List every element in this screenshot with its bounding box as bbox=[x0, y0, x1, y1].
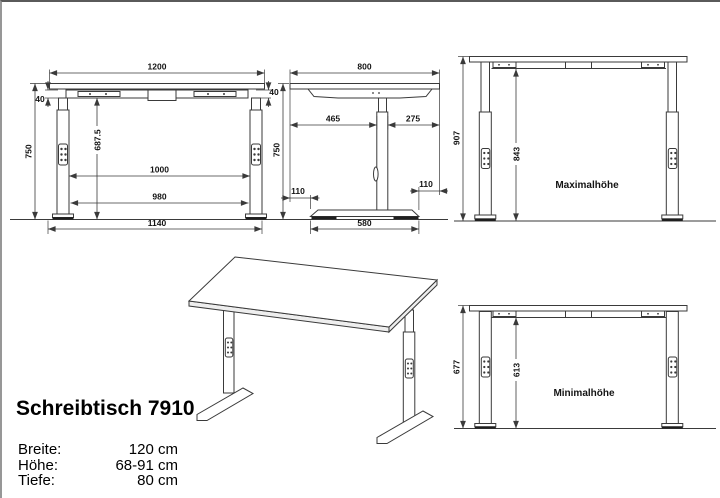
front-center-bracket bbox=[148, 90, 176, 101]
spec-table: Breite: 120 cm Höhe: 68-91 cm Tiefe: 80 … bbox=[18, 442, 178, 489]
dim-front-feet-span: 1140 bbox=[148, 218, 167, 228]
dim-side-depth: 800 bbox=[357, 62, 371, 72]
product-block: Schreibtisch 7910 bbox=[16, 397, 195, 421]
dim-front-top-width: 1200 bbox=[148, 62, 167, 72]
dim-side-height: 750 bbox=[272, 143, 282, 157]
min-left-leg bbox=[475, 312, 496, 429]
side-frame bbox=[308, 89, 432, 98]
dim-side-overhang-rear: 110 bbox=[419, 179, 433, 189]
max-left-leg bbox=[475, 62, 496, 221]
min-height-view: 677 613 Minimalhöhe bbox=[452, 306, 688, 429]
dim-side-rear-seg: 275 bbox=[406, 114, 420, 124]
side-tabletop bbox=[290, 84, 440, 90]
dim-front-inner-lower: 980 bbox=[152, 192, 166, 202]
max-right-leg bbox=[662, 62, 683, 221]
dim-front-clearance: 687.5 bbox=[92, 129, 102, 151]
dim-min-total-height: 677 bbox=[452, 360, 462, 374]
spec-value-breite: 120 cm bbox=[129, 442, 178, 458]
dim-side-overhang-front: 110 bbox=[291, 186, 305, 196]
max-height-view: 907 843 Maximalhöhe bbox=[452, 57, 688, 222]
dim-side-base-depth: 580 bbox=[357, 218, 371, 228]
side-view: 800 465 275 750 110 110 580 bbox=[272, 62, 449, 235]
min-right-leg bbox=[662, 312, 683, 429]
technical-drawing-sheet: 1200 40 40 750 687.5 1000 980 1140 bbox=[0, 0, 720, 498]
spec-label-breite: Breite: bbox=[18, 442, 61, 458]
max-tabletop bbox=[470, 57, 688, 63]
dim-min-clearance: 613 bbox=[511, 363, 521, 377]
front-right-leg bbox=[246, 98, 267, 220]
dim-front-height: 750 bbox=[24, 144, 34, 158]
perspective-view bbox=[189, 257, 437, 444]
spec-row-hoehe: Höhe: 68-91 cm bbox=[18, 458, 178, 474]
min-tabletop bbox=[470, 306, 688, 312]
drawing-canvas: 1200 40 40 750 687.5 1000 980 1140 bbox=[2, 2, 720, 498]
product-title: Schreibtisch 7910 bbox=[16, 397, 195, 421]
front-tabletop bbox=[50, 84, 265, 90]
view-label-max: Maximalhöhe bbox=[555, 180, 619, 191]
dim-max-clearance: 843 bbox=[511, 147, 521, 161]
spec-value-tiefe: 80 cm bbox=[137, 473, 178, 489]
dim-front-frame-left: 40 bbox=[35, 94, 45, 104]
spec-label-tiefe: Tiefe: bbox=[18, 473, 55, 489]
perspective-left-leg bbox=[197, 304, 253, 421]
spec-row-breite: Breite: 120 cm bbox=[18, 442, 178, 458]
dim-front-inner-upper: 1000 bbox=[150, 165, 169, 175]
dim-max-total-height: 907 bbox=[452, 131, 462, 145]
dim-side-front-seg: 465 bbox=[326, 114, 340, 124]
dim-front-frame-right: 40 bbox=[269, 87, 279, 97]
front-left-leg bbox=[53, 98, 74, 220]
side-column bbox=[374, 98, 388, 210]
front-view: 1200 40 40 750 687.5 1000 980 1140 bbox=[24, 62, 279, 235]
spec-value-hoehe: 68-91 cm bbox=[115, 458, 178, 474]
view-label-min: Minimalhöhe bbox=[553, 388, 615, 399]
spec-row-tiefe: Tiefe: 80 cm bbox=[18, 473, 178, 489]
spec-label-hoehe: Höhe: bbox=[18, 458, 58, 474]
